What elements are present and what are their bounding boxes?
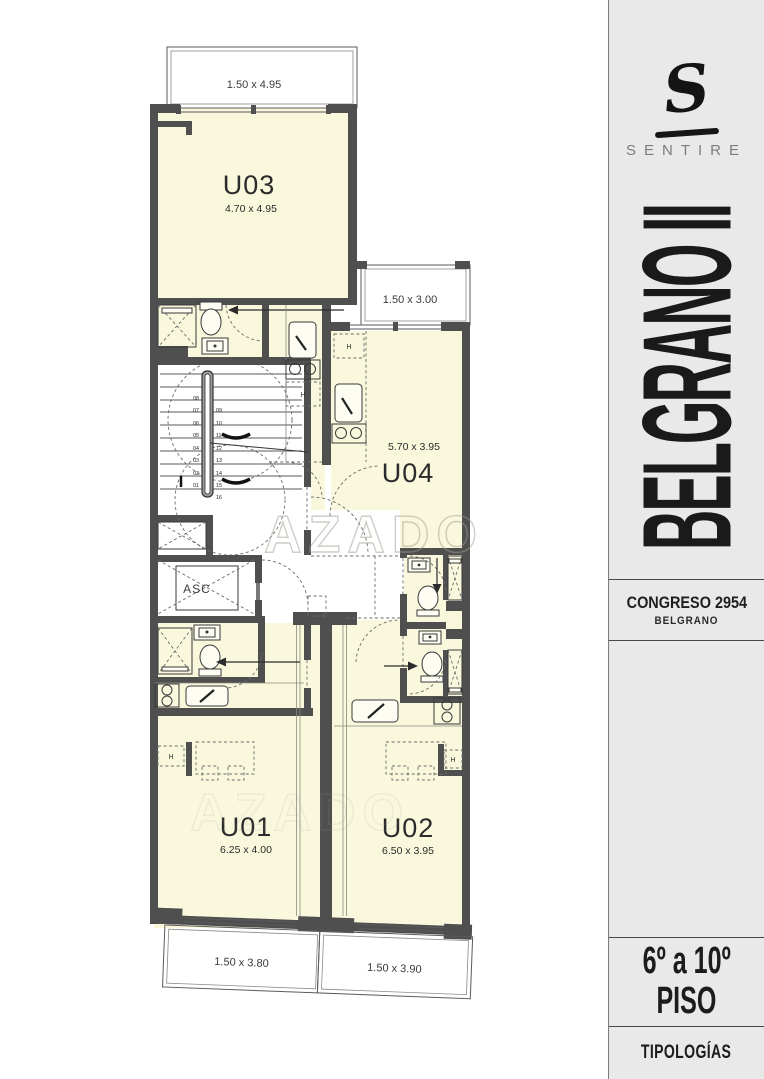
floors-word: PISO: [657, 982, 717, 1022]
toilet-fixture: [200, 302, 222, 335]
svg-text:H: H: [346, 344, 351, 351]
project-title: BELGRANO II: [609, 188, 764, 566]
floors-range: 6º a 10º: [642, 942, 730, 982]
sink-fixture: [194, 625, 220, 640]
brand-name: SENTIRE: [609, 142, 764, 159]
sink-fixture: [419, 631, 441, 644]
svg-text:05: 05: [193, 433, 199, 439]
unit-u04-dims: 5.70 x 3.95: [388, 441, 440, 453]
svg-text:03: 03: [193, 458, 199, 464]
svg-text:06: 06: [193, 421, 199, 427]
sentire-logo-icon: S: [606, 44, 764, 135]
sheet-type-block: TIPOLOGÍAS: [609, 1027, 764, 1079]
unit-u03-dims: 4.70 x 4.95: [225, 203, 277, 215]
kitchen-sink: [289, 322, 316, 358]
svg-text:H: H: [168, 754, 173, 761]
svg-text:14: 14: [216, 471, 222, 477]
unit-u04-label: U04: [382, 458, 435, 488]
svg-text:02: 02: [193, 471, 199, 477]
unit-u03-label: U03: [223, 170, 276, 200]
address-neighborhood: BELGRANO: [655, 615, 719, 627]
svg-text:04: 04: [193, 446, 199, 452]
kitchen-sink: [335, 384, 362, 422]
sheet-type-label: TIPOLOGÍAS: [641, 1042, 731, 1064]
svg-text:01: 01: [193, 483, 199, 489]
svg-text:10: 10: [216, 421, 222, 427]
address-street: CONGRESO 2954: [626, 593, 746, 613]
svg-text:13: 13: [216, 458, 222, 464]
balcony-u04-dims: 1.50 x 3.00: [383, 294, 437, 306]
balcony-u02-dims: 1.50 x 3.90: [367, 962, 422, 976]
svg-text:08: 08: [193, 396, 199, 402]
balcony-u02: 1.50 x 3.90: [317, 931, 472, 999]
address-block: CONGRESO 2954 BELGRANO: [609, 580, 764, 640]
balcony-u03-dims: 1.50 x 4.95: [227, 79, 281, 91]
sink-fixture: [202, 338, 228, 354]
floor-plan: 1.50 x 4.95 1.50 x 3.00 1.50 x 3.80 1.50…: [0, 0, 608, 1079]
watermark: AZADO: [264, 506, 484, 564]
svg-text:07: 07: [193, 408, 199, 414]
unit-u02-dims: 6.50 x 3.95: [382, 845, 434, 857]
svg-text:16: 16: [216, 495, 222, 501]
balcony-u04: 1.50 x 3.00: [361, 265, 470, 325]
svg-text:H: H: [450, 757, 455, 764]
svg-text:H: H: [300, 392, 305, 399]
balcony-u01: 1.50 x 3.80: [163, 925, 320, 993]
svg-text:09: 09: [216, 408, 222, 414]
watermark: AZADO: [190, 784, 410, 842]
brand-sidebar: S SENTIRE BELGRANO II CONGRESO 2954 BELG…: [608, 0, 764, 1079]
project-title-text: BELGRANO II: [614, 204, 760, 549]
svg-text:12: 12: [216, 446, 222, 452]
svg-text:15: 15: [216, 483, 222, 489]
svg-text:11: 11: [216, 433, 222, 439]
typology-sheet: 1.50 x 4.95 1.50 x 3.00 1.50 x 3.80 1.50…: [0, 0, 764, 1079]
balcony-u01-dims: 1.50 x 3.80: [214, 956, 269, 970]
divider: [609, 640, 764, 641]
floors-block: 6º a 10º PISO: [609, 938, 764, 1026]
balcony-u03: 1.50 x 4.95: [167, 47, 357, 108]
toilet-fixture: [199, 645, 221, 676]
unit-u01-dims: 6.25 x 4.00: [220, 844, 272, 856]
elevator-label: ASC: [183, 582, 211, 596]
